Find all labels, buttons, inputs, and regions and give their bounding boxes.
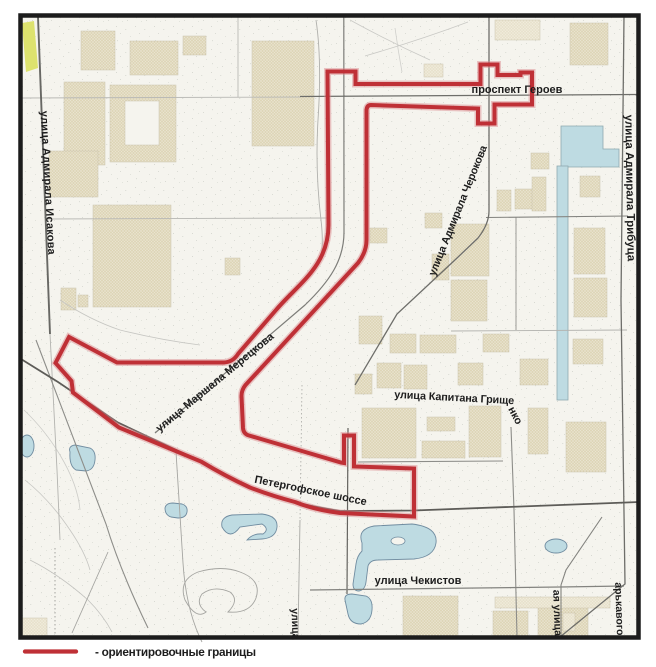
svg-text:проспект Героев: проспект Героев xyxy=(472,84,563,96)
svg-text:улица: улица xyxy=(288,608,301,640)
svg-text:ая улица: ая улица xyxy=(550,590,564,637)
svg-text:улица Чекистов: улица Чекистов xyxy=(375,575,462,587)
svg-text:- ориентировочные границы: - ориентировочные границы xyxy=(95,645,256,659)
svg-text:арькавого: арькавого xyxy=(612,582,626,636)
svg-text:улица Адмирала Трибуца: улица Адмирала Трибуца xyxy=(622,115,637,262)
